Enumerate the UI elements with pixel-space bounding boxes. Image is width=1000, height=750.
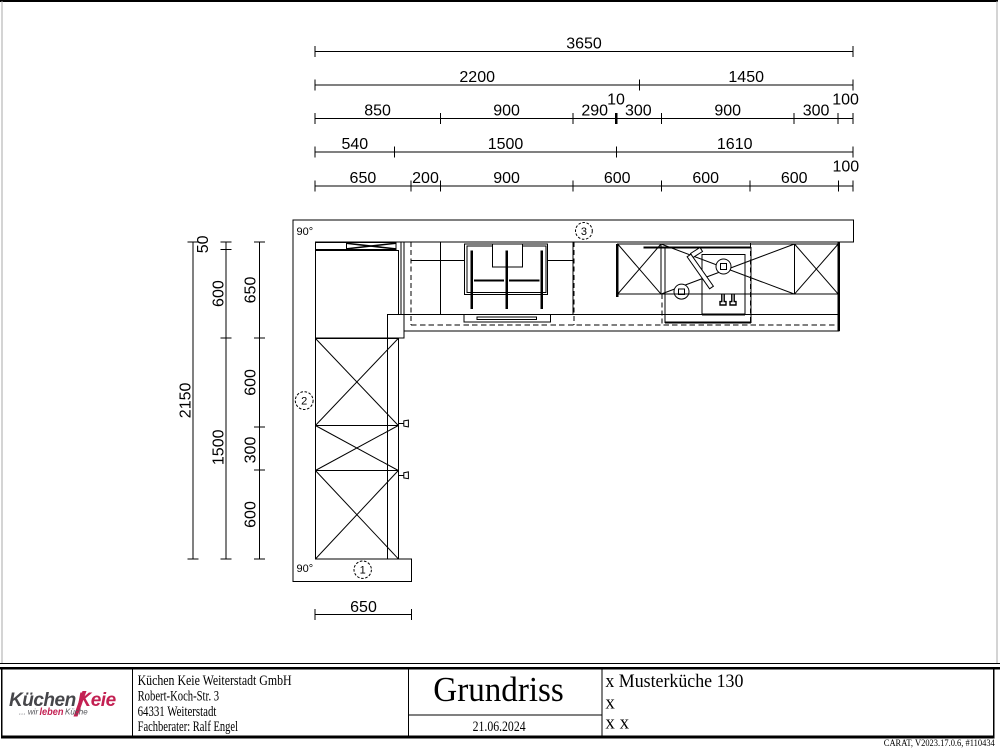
svg-text:... wir: ... wir xyxy=(19,708,38,717)
svg-text:300: 300 xyxy=(625,103,652,120)
svg-text:1500: 1500 xyxy=(210,429,227,465)
svg-text:850: 850 xyxy=(364,103,391,120)
svg-text:600: 600 xyxy=(243,501,260,528)
svg-text:leben: leben xyxy=(40,707,64,718)
svg-text:64331 Weiterstadt: 64331 Weiterstadt xyxy=(138,704,217,720)
svg-text:50: 50 xyxy=(195,235,212,253)
svg-text:Küchen Keie Weiterstadt GmbH: Küchen Keie Weiterstadt GmbH xyxy=(138,673,292,689)
svg-text:2200: 2200 xyxy=(459,69,495,86)
svg-text:2: 2 xyxy=(301,396,307,408)
svg-text:600: 600 xyxy=(210,280,227,307)
svg-text:1: 1 xyxy=(360,565,366,577)
svg-text:3650: 3650 xyxy=(566,36,602,53)
svg-text:650: 650 xyxy=(350,170,377,187)
svg-text:2150: 2150 xyxy=(178,383,195,419)
svg-text:x x: x x xyxy=(605,712,629,733)
svg-text:Küche: Küche xyxy=(65,708,88,717)
svg-text:600: 600 xyxy=(692,170,719,187)
svg-text:10: 10 xyxy=(607,92,625,109)
svg-text:CARAT, V2023.17.0.6, #110434: CARAT, V2023.17.0.6, #110434 xyxy=(884,739,995,749)
svg-text:x Musterküche 130: x Musterküche 130 xyxy=(605,671,743,692)
svg-text:3: 3 xyxy=(581,226,587,238)
svg-text:100: 100 xyxy=(832,159,859,176)
svg-text:900: 900 xyxy=(493,103,520,120)
svg-text:Robert-Koch-Str. 3: Robert-Koch-Str. 3 xyxy=(138,689,220,705)
svg-text:600: 600 xyxy=(243,369,260,396)
svg-text:Fachberater: Ralf Engel: Fachberater: Ralf Engel xyxy=(138,719,238,735)
svg-text:1610: 1610 xyxy=(717,136,753,153)
svg-text:1500: 1500 xyxy=(488,136,524,153)
svg-text:1450: 1450 xyxy=(728,69,764,86)
svg-text:300: 300 xyxy=(803,103,830,120)
svg-text:90°: 90° xyxy=(297,563,314,575)
svg-text:90°: 90° xyxy=(297,226,314,238)
svg-text:540: 540 xyxy=(341,136,368,153)
svg-text:600: 600 xyxy=(604,170,631,187)
svg-text:900: 900 xyxy=(714,103,741,120)
svg-text:200: 200 xyxy=(412,170,439,187)
svg-text:300: 300 xyxy=(243,437,260,464)
svg-text:Grundriss: Grundriss xyxy=(433,670,564,709)
svg-text:900: 900 xyxy=(493,170,520,187)
svg-text:21.06.2024: 21.06.2024 xyxy=(473,719,526,735)
svg-text:290: 290 xyxy=(581,103,608,120)
svg-text:100: 100 xyxy=(832,92,859,109)
svg-text:600: 600 xyxy=(781,170,808,187)
svg-text:650: 650 xyxy=(243,277,260,304)
svg-text:650: 650 xyxy=(350,599,377,616)
svg-text:x: x xyxy=(605,693,615,714)
